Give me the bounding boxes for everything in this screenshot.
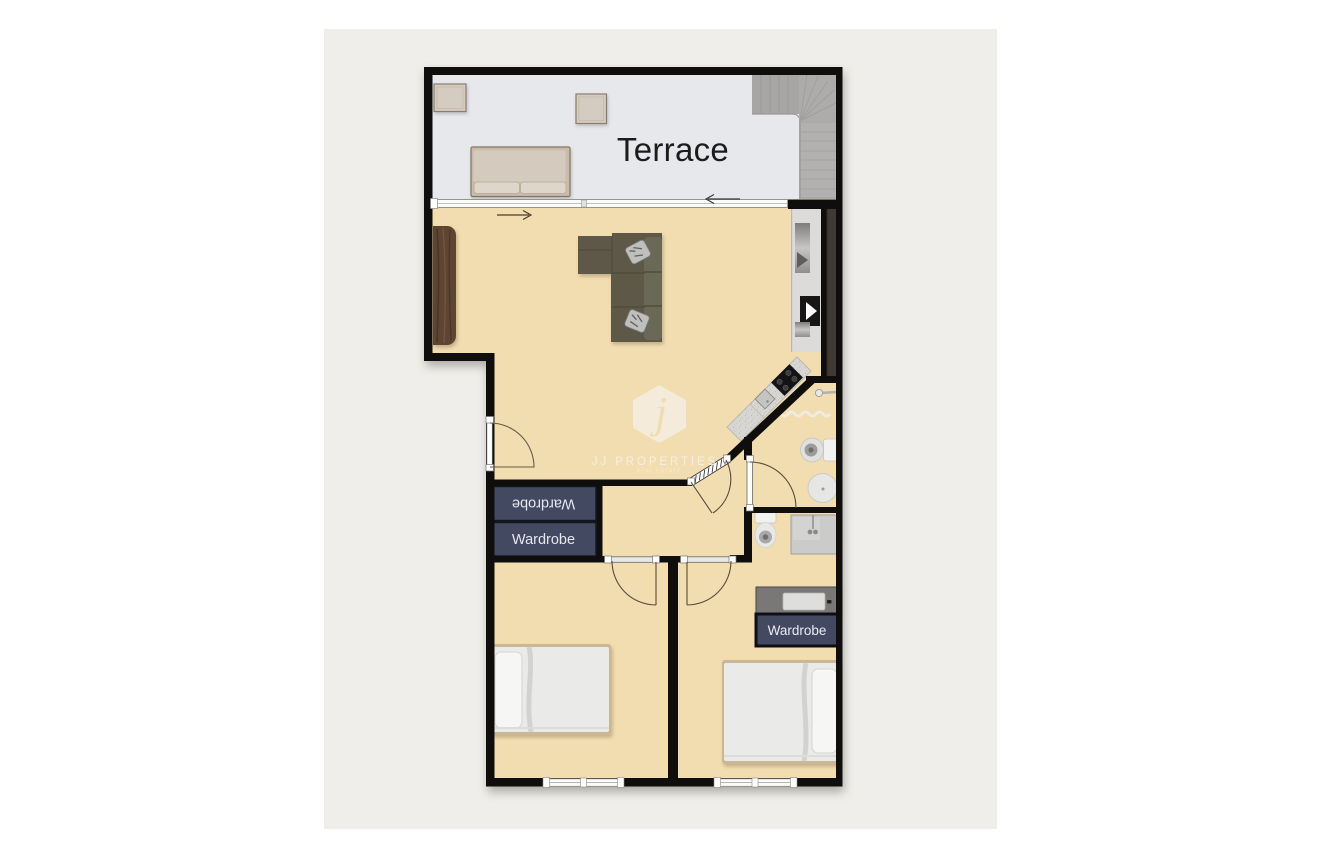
svg-text:Wardrobe: Wardrobe	[768, 623, 827, 638]
svg-text:Terrace: Terrace	[617, 131, 729, 168]
svg-text:JJ PROPERTIES: JJ PROPERTIES	[592, 456, 718, 468]
svg-text:Wardrobe: Wardrobe	[512, 496, 575, 512]
svg-text:REAL ESTATE: REAL ESTATE	[636, 469, 681, 475]
svg-text:Wardrobe: Wardrobe	[512, 532, 575, 548]
